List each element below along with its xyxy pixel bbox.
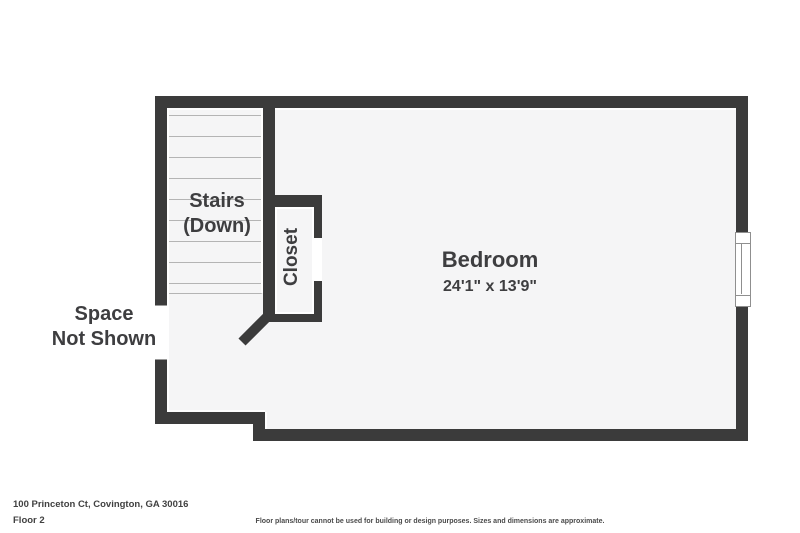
bedroom-label: Bedroom 24'1" x 13'9" [390,246,590,297]
wall-bottom-left [155,412,265,424]
bedroom-name: Bedroom [390,246,590,274]
space-not-shown-line1: Space [40,302,168,327]
closet-label: Closet [272,217,312,297]
footer-address: 100 Princeton Ct, Covington, GA 30016 [13,499,333,511]
space-not-shown-label: Space Not Shown [40,302,168,352]
window-sash-top [736,243,750,244]
space-not-shown-line2: Not Shown [40,327,168,352]
window-sash-bottom [736,295,750,296]
window-pane-line [741,244,742,294]
bedroom-dimensions: 24'1" x 13'9" [390,277,590,297]
wall-bottom-main [253,429,748,441]
stairs-label-line1: Stairs [163,189,271,214]
window-symbol [735,232,751,307]
stairs-label: Stairs (Down) [163,189,271,239]
floorplan-page: Stairs (Down) Closet Bedroom 24'1" x 13'… [0,0,800,533]
footer-disclaimer: Floor plans/tour cannot be used for buil… [250,518,610,527]
wall-top [155,96,748,108]
stairs-label-line2: (Down) [163,214,271,239]
